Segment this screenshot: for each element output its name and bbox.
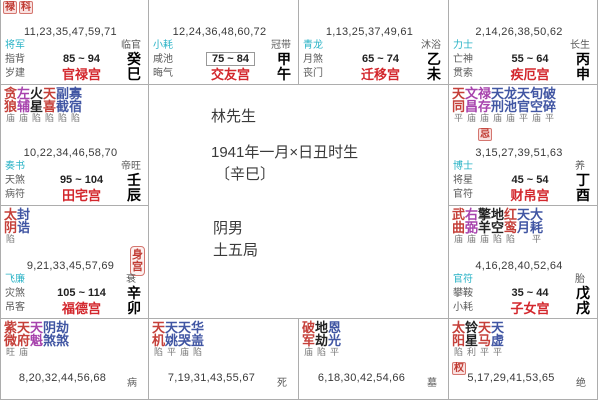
- star-brightness: 庙: [178, 347, 191, 358]
- star-brightness: 利: [465, 347, 478, 358]
- earthly-branch: 卯: [122, 301, 146, 316]
- palace-cell-zinv[interactable]: 武曲庙右弼庙擎羊庙地空陷红鸾陷天月 大耗平4,16,28,40,52,64官符攀…: [449, 206, 598, 319]
- stars-row: 紫微旺天府庙天魁 阴煞 劫煞: [4, 321, 69, 358]
- palace-cell-qianyi[interactable]: 1,13,25,37,49,61青龙月煞丧门65 ~ 74迁移宫沐浴乙未: [299, 0, 449, 85]
- heavenly-stem: 壬: [122, 173, 146, 188]
- star-name: 天机: [152, 321, 165, 347]
- ages-row: 4,16,28,40,52,64: [453, 260, 595, 273]
- star-brightness: [517, 234, 530, 245]
- star-name: 太阴: [4, 208, 17, 234]
- stars-row: 太阳陷权铃星利天马平天虚平: [452, 321, 504, 376]
- transform-badge-禄: 禄: [3, 1, 17, 14]
- stars-row: 贪狼庙左辅庙火星陷天喜陷副截陷寡宿陷: [4, 87, 82, 124]
- palace-footer: 1,13,25,37,49,61青龙月煞丧门65 ~ 74迁移宫沐浴乙未: [303, 26, 446, 83]
- star-天魁: 天魁: [30, 321, 43, 358]
- star-name: 破军: [302, 321, 315, 347]
- stars-row: 破军庙地劫陷恩光平: [302, 321, 341, 358]
- star-brightness: 平: [543, 113, 556, 124]
- decade-range: 45 ~ 54: [489, 173, 571, 187]
- decade-range: 105 ~ 114: [41, 286, 122, 300]
- star-name: 劫煞: [56, 321, 69, 347]
- ages-row: 6,18,30,42,54,66: [303, 372, 430, 390]
- star-左辅: 左辅庙: [17, 87, 30, 124]
- palace-footer: 11,23,35,47,59,71将军指背岁建85 ~ 94官禄宫临官癸巳: [5, 26, 146, 83]
- star-阴煞: 阴煞: [43, 321, 56, 358]
- star-name: 恩光: [328, 321, 341, 347]
- star-brightness: 庙: [491, 113, 504, 124]
- star-华盖: 华盖陷: [191, 321, 204, 358]
- heavenly-stem: 丙: [571, 52, 595, 67]
- star-name: 天喜: [43, 87, 56, 113]
- year-gods: 博士将星官符: [453, 160, 489, 204]
- heavenly-stem: 癸: [122, 52, 146, 67]
- star-红鸾: 红鸾陷: [504, 208, 517, 245]
- ages-line: 7,19,31,43,55,67死: [153, 372, 296, 390]
- star-brightness: 庙: [17, 113, 30, 124]
- ages-line: 5,17,29,41,53,65绝: [453, 372, 595, 390]
- palace-name: 交友宫: [189, 66, 272, 83]
- palace-footer: 2,14,26,38,50,62力士亡神贯索55 ~ 64疾厄宫长生丙申: [453, 26, 595, 83]
- star-封诰: 封诰: [17, 208, 30, 245]
- earthly-branch: 巳: [122, 67, 146, 82]
- star-name: 左辅: [17, 87, 30, 113]
- star-brightness: 庙: [302, 347, 315, 358]
- life-stage-label: 养: [568, 160, 592, 173]
- palace-footer: 4,16,28,40,52,64官符攀鞍小耗35 ~ 44子女宫胎戊戌: [453, 260, 595, 317]
- stars-row: 武曲庙右弼庙擎羊庙地空陷红鸾陷天月 大耗平: [452, 208, 543, 245]
- star-brightness: 陷: [152, 347, 165, 358]
- star-擎羊: 擎羊庙: [478, 208, 491, 245]
- decade-range: 65 ~ 74: [339, 52, 422, 66]
- life-stage-label: 衰: [119, 273, 143, 286]
- life-stage-label: 临官: [119, 39, 143, 52]
- star-地空: 地空陷: [491, 208, 504, 245]
- palace-cell-caibo[interactable]: 天同平文昌庙禄存庙忌天刑庙龙池庙天官平旬空庙破碎平3,15,27,39,51,6…: [449, 85, 598, 206]
- center-info-panel: 林先生 1941年一月×日丑时生 〔辛巳〕 阴男 土五局: [149, 85, 449, 319]
- star-name: 旬空: [530, 87, 543, 113]
- star-破军: 破军庙: [302, 321, 315, 358]
- year-gods: 力士亡神贯索: [453, 39, 489, 83]
- decade-range: 55 ~ 64: [489, 52, 571, 66]
- life-stage-label: 墓: [427, 377, 443, 390]
- star-name: 天哭: [178, 321, 191, 347]
- star-brightness: [30, 347, 43, 358]
- star-贪狼: 贪狼庙: [4, 87, 17, 124]
- decade-range: 35 ~ 44: [489, 286, 571, 300]
- palace-footer: 3,15,27,39,51,63博士将星官符45 ~ 54财帛宫养丁酉: [453, 147, 595, 204]
- star-太阴: 太阴陷: [4, 208, 17, 245]
- star-地劫: 地劫陷: [315, 321, 328, 358]
- star-name: 天府: [17, 321, 30, 347]
- transform-badge-忌: 忌: [478, 128, 492, 141]
- ages-row: 9,21,33,45,57,69: [5, 260, 146, 273]
- star-name: 华盖: [191, 321, 204, 347]
- star-name: 紫微: [4, 321, 17, 347]
- star-name: 武曲: [452, 208, 465, 234]
- heavenly-stem: 戊: [571, 286, 595, 301]
- star-brightness: 陷: [491, 234, 504, 245]
- palace-name: 官禄宫: [41, 66, 122, 83]
- star-brightness: 平: [328, 347, 341, 358]
- star-破碎: 破碎平: [543, 87, 556, 142]
- star-brightness: 旺: [4, 347, 17, 358]
- star-name: 太阳: [452, 321, 465, 347]
- star-天月: 天月: [517, 208, 530, 245]
- star-brightness: 陷: [43, 113, 56, 124]
- earthly-branch: 申: [571, 67, 595, 82]
- transform-badges: 禄科: [3, 1, 33, 14]
- person-name: 林先生: [211, 105, 256, 126]
- star-name: 天虚: [491, 321, 504, 347]
- star-旬空: 旬空庙: [530, 87, 543, 142]
- transform-badge-科: 科: [19, 1, 33, 14]
- star-brightness: 庙: [17, 347, 30, 358]
- palace-name: 子女宫: [489, 300, 571, 317]
- star-brightness: 庙: [452, 234, 465, 245]
- palace-cell-jiaoyou[interactable]: 12,24,36,48,60,72小耗咸池晦气75 ~ 84交友宫冠带甲午: [149, 0, 299, 85]
- ages-row: 1,13,25,37,49,61: [303, 26, 446, 39]
- star-name: 阴煞: [43, 321, 56, 347]
- year-gods: 小耗咸池晦气: [153, 39, 189, 83]
- year-gods: 奏书天煞病符: [5, 160, 41, 204]
- year-gods: 将军指背岁建: [5, 39, 41, 83]
- life-stage-label: 绝: [576, 377, 592, 390]
- heavenly-stem: 丁: [571, 173, 595, 188]
- star-brightness: 陷: [191, 347, 204, 358]
- star-name: 天同: [452, 87, 465, 113]
- star-大耗: 大耗平: [530, 208, 543, 245]
- decade-range: 95 ~ 104: [41, 173, 122, 187]
- star-brightness: 平: [517, 113, 530, 124]
- palace-name: 迁移宫: [339, 66, 422, 83]
- ages-row: 3,15,27,39,51,63: [453, 147, 595, 160]
- heavenly-stem: 甲: [272, 52, 296, 67]
- star-brightness: [43, 347, 56, 358]
- life-stage-label: 冠带: [269, 39, 293, 52]
- ages-row: 11,23,35,47,59,71: [5, 26, 146, 39]
- star-太阳: 太阳陷权: [452, 321, 465, 376]
- life-stage-label: 病: [127, 377, 143, 390]
- decade-range: 85 ~ 94: [41, 52, 122, 66]
- star-劫煞: 劫煞: [56, 321, 69, 358]
- star-brightness: 平: [491, 347, 504, 358]
- ages-row: 7,19,31,43,55,67: [153, 372, 280, 390]
- star-name: 文昌: [465, 87, 478, 113]
- star-name: 副截: [56, 87, 69, 113]
- ages-row: 10,22,34,46,58,70: [5, 147, 146, 160]
- star-天虚: 天虚平: [491, 321, 504, 376]
- palace-cell-r4c3[interactable]: 破军庙地劫陷恩光平6,18,30,42,54,66墓: [299, 319, 449, 400]
- star-天哭: 天哭庙: [178, 321, 191, 358]
- star-brightness: [56, 347, 69, 358]
- gender-label: 阴男: [213, 217, 243, 238]
- bureau-label: 土五局: [213, 239, 258, 260]
- star-brightness: 庙: [504, 113, 517, 124]
- star-brightness: 庙: [478, 234, 491, 245]
- heavenly-stem: 辛: [122, 286, 146, 301]
- life-stage-label: 胎: [568, 273, 592, 286]
- palace-footer: 10,22,34,46,58,70奏书天煞病符95 ~ 104田宅宫帝旺壬辰: [5, 147, 146, 204]
- star-禄存: 禄存庙忌: [478, 87, 491, 142]
- star-火星: 火星陷: [30, 87, 43, 124]
- star-name: 天官: [517, 87, 530, 113]
- ages-line: 6,18,30,42,54,66墓: [303, 372, 446, 390]
- earthly-branch: 午: [272, 67, 296, 82]
- star-brightness: 庙: [478, 113, 491, 124]
- stars-row: 天机陷天姚平天哭庙华盖陷: [152, 321, 204, 358]
- star-name: 寡宿: [69, 87, 82, 113]
- star-brightness: 陷: [4, 234, 17, 245]
- star-文昌: 文昌庙: [465, 87, 478, 142]
- star-name: 天魁: [30, 321, 43, 347]
- star-name: 右弼: [465, 208, 478, 234]
- palace-footer: 9,21,33,45,57,69飞廉灾煞吊客105 ~ 114福德宫衰辛卯: [5, 260, 146, 317]
- star-brightness: 平: [452, 113, 465, 124]
- palace-name: 福德宫: [41, 300, 122, 317]
- star-name: 贪狼: [4, 87, 17, 113]
- star-brightness: [17, 234, 30, 245]
- star-brightness: 庙: [530, 113, 543, 124]
- star-name: 火星: [30, 87, 43, 113]
- star-brightness: 庙: [465, 113, 478, 124]
- star-brightness: 平: [165, 347, 178, 358]
- ziwei-chart: 林先生 1941年一月×日丑时生 〔辛巳〕 阴男 土五局 禄科11,23,35,…: [0, 0, 597, 400]
- star-天姚: 天姚平: [165, 321, 178, 358]
- star-name: 天姚: [165, 321, 178, 347]
- star-天官: 天官平: [517, 87, 530, 142]
- heavenly-stem: 乙: [422, 52, 446, 67]
- star-name: 封诰: [17, 208, 30, 234]
- palace-footer: 12,24,36,48,60,72小耗咸池晦气75 ~ 84交友宫冠带甲午: [153, 26, 296, 83]
- star-name: 禄存: [478, 87, 491, 113]
- earthly-branch: 未: [422, 67, 446, 82]
- palace-name: 财帛宫: [489, 187, 571, 204]
- earthly-branch: 辰: [122, 188, 146, 203]
- star-天刑: 天刑庙: [491, 87, 504, 142]
- ages-row: 8,20,32,44,56,68: [5, 372, 130, 390]
- star-天府: 天府庙: [17, 321, 30, 358]
- star-brightness: 陷: [315, 347, 328, 358]
- star-恩光: 恩光平: [328, 321, 341, 358]
- palace-cell-r4c2[interactable]: 天机陷天姚平天哭庙华盖陷7,19,31,43,55,67死: [149, 319, 299, 400]
- star-右弼: 右弼庙: [465, 208, 478, 245]
- decade-range[interactable]: 75 ~ 84: [189, 52, 272, 66]
- year-gods: 青龙月煞丧门: [303, 39, 339, 83]
- star-brightness: 庙: [465, 234, 478, 245]
- life-stage-label: 沐浴: [419, 39, 443, 52]
- stars-row: 太阴陷封诰: [4, 208, 30, 245]
- life-stage-label: 帝旺: [119, 160, 143, 173]
- ages-row: 5,17,29,41,53,65: [453, 372, 579, 390]
- earthly-branch: 戌: [571, 301, 595, 316]
- star-天同: 天同平: [452, 87, 465, 142]
- star-紫微: 紫微旺: [4, 321, 17, 358]
- star-副截: 副截陷: [56, 87, 69, 124]
- palace-cell-jie[interactable]: 2,14,26,38,50,62力士亡神贯索55 ~ 64疾厄宫长生丙申: [449, 0, 598, 85]
- star-brightness: 陷: [504, 234, 517, 245]
- star-brightness: 陷: [69, 113, 82, 124]
- star-天马: 天马平: [478, 321, 491, 376]
- year-gods: 官符攀鞍小耗: [453, 273, 489, 317]
- star-brightness: 平: [478, 347, 491, 358]
- star-name: 地劫: [315, 321, 328, 347]
- palace-cell-tianzhai[interactable]: 贪狼庙左辅庙火星陷天喜陷副截陷寡宿陷10,22,34,46,58,70奏书天煞病…: [1, 85, 149, 206]
- star-name: 红鸾: [504, 208, 517, 234]
- palace-cell-r4c1[interactable]: 紫微旺天府庙天魁 阴煞 劫煞 8,20,32,44,56,68病: [1, 319, 149, 400]
- star-铃星: 铃星利: [465, 321, 478, 376]
- star-name: 大耗: [530, 208, 543, 234]
- palace-cell-r4c4[interactable]: 太阳陷权铃星利天马平天虚平5,17,29,41,53,65绝: [449, 319, 598, 400]
- palace-cell-guanlu[interactable]: 禄科11,23,35,47,59,71将军指背岁建85 ~ 94官禄宫临官癸巳: [1, 0, 149, 85]
- palace-name: 疾厄宫: [489, 66, 571, 83]
- birth-line: 1941年一月×日丑时生: [211, 141, 358, 162]
- star-寡宿: 寡宿陷: [69, 87, 82, 124]
- star-武曲: 武曲庙: [452, 208, 465, 245]
- ages-row: 2,14,26,38,50,62: [453, 26, 595, 39]
- year-gods: 飞廉灾煞吊客: [5, 273, 41, 317]
- star-brightness: 陷: [452, 347, 465, 358]
- life-stage-label: 死: [277, 377, 293, 390]
- star-name: 地空: [491, 208, 504, 234]
- star-brightness: 庙: [4, 113, 17, 124]
- star-name: 铃星: [465, 321, 478, 347]
- star-天机: 天机陷: [152, 321, 165, 358]
- star-brightness: 陷: [56, 113, 69, 124]
- palace-cell-fude[interactable]: 太阴陷封诰 身宫9,21,33,45,57,69飞廉灾煞吊客105 ~ 114福…: [1, 206, 149, 319]
- birth-year: 〔辛巳〕: [215, 163, 275, 184]
- star-name: 龙池: [504, 87, 517, 113]
- ages-row: 12,24,36,48,60,72: [153, 26, 296, 39]
- earthly-branch: 酉: [571, 188, 595, 203]
- star-name: 天马: [478, 321, 491, 347]
- stars-row: 天同平文昌庙禄存庙忌天刑庙龙池庙天官平旬空庙破碎平: [452, 87, 556, 142]
- life-stage-label: 长生: [568, 39, 592, 52]
- star-brightness: 陷: [30, 113, 43, 124]
- star-龙池: 龙池庙: [504, 87, 517, 142]
- ages-line: 8,20,32,44,56,68病: [5, 372, 146, 390]
- star-name: 破碎: [543, 87, 556, 113]
- palace-name: 田宅宫: [41, 187, 122, 204]
- star-name: 天刑: [491, 87, 504, 113]
- star-name: 擎羊: [478, 208, 491, 234]
- star-天喜: 天喜陷: [43, 87, 56, 124]
- star-name: 天月: [517, 208, 530, 234]
- star-brightness: 平: [530, 234, 543, 245]
